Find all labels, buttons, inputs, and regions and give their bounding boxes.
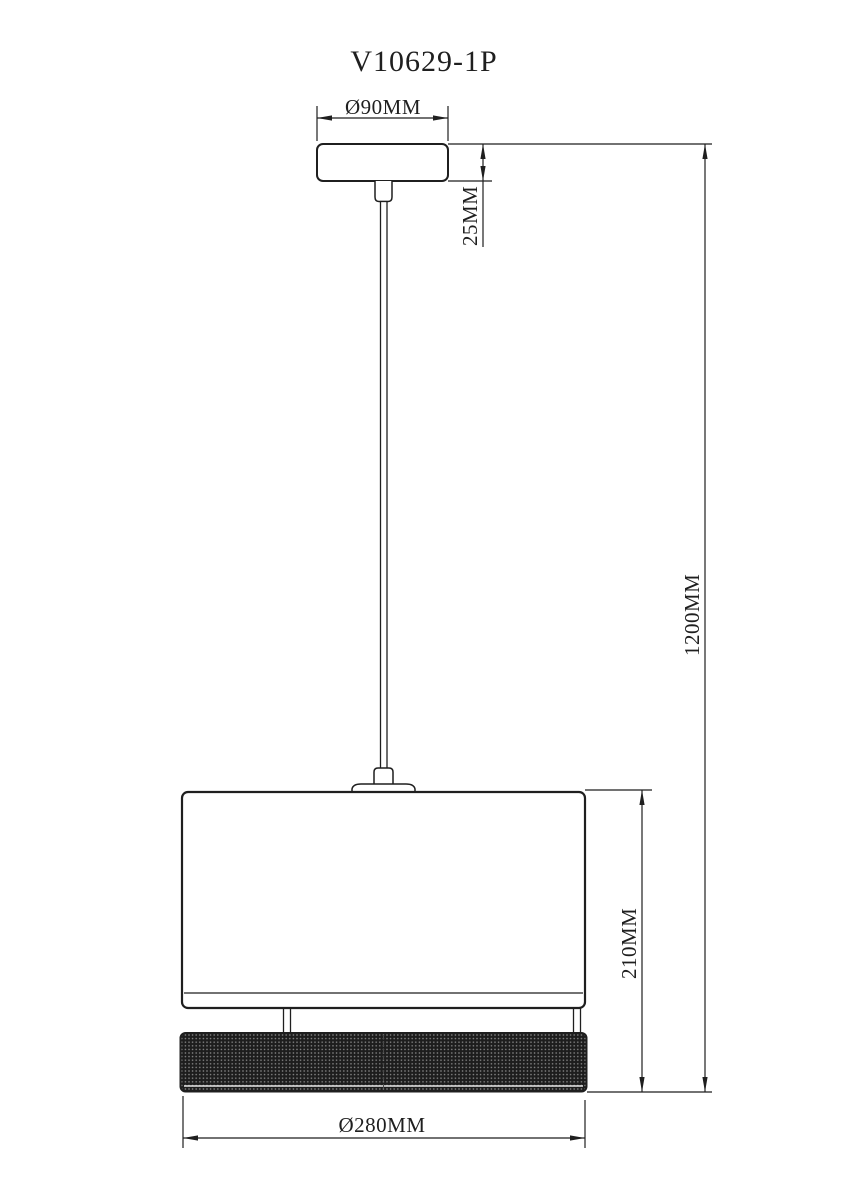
page-title: V10629-1P <box>350 45 497 78</box>
mesh-diffuser-band <box>181 1033 587 1092</box>
canopy-height-label: 25MM <box>458 186 482 246</box>
pendant-lamp-technical-drawing: V10629-1P <box>0 0 848 1200</box>
cord-connector-top <box>375 181 392 202</box>
shade-diameter-label: Ø280MM <box>338 1113 425 1137</box>
ceiling-canopy <box>317 144 448 181</box>
suspension-cord <box>381 202 388 769</box>
overall-height-label: 1200MM <box>680 574 704 656</box>
shade-top-collar <box>352 784 415 792</box>
canopy-diameter-label: Ø90MM <box>345 95 421 119</box>
shade-height-label: 210MM <box>617 908 641 979</box>
lamp-shade <box>182 792 585 1008</box>
